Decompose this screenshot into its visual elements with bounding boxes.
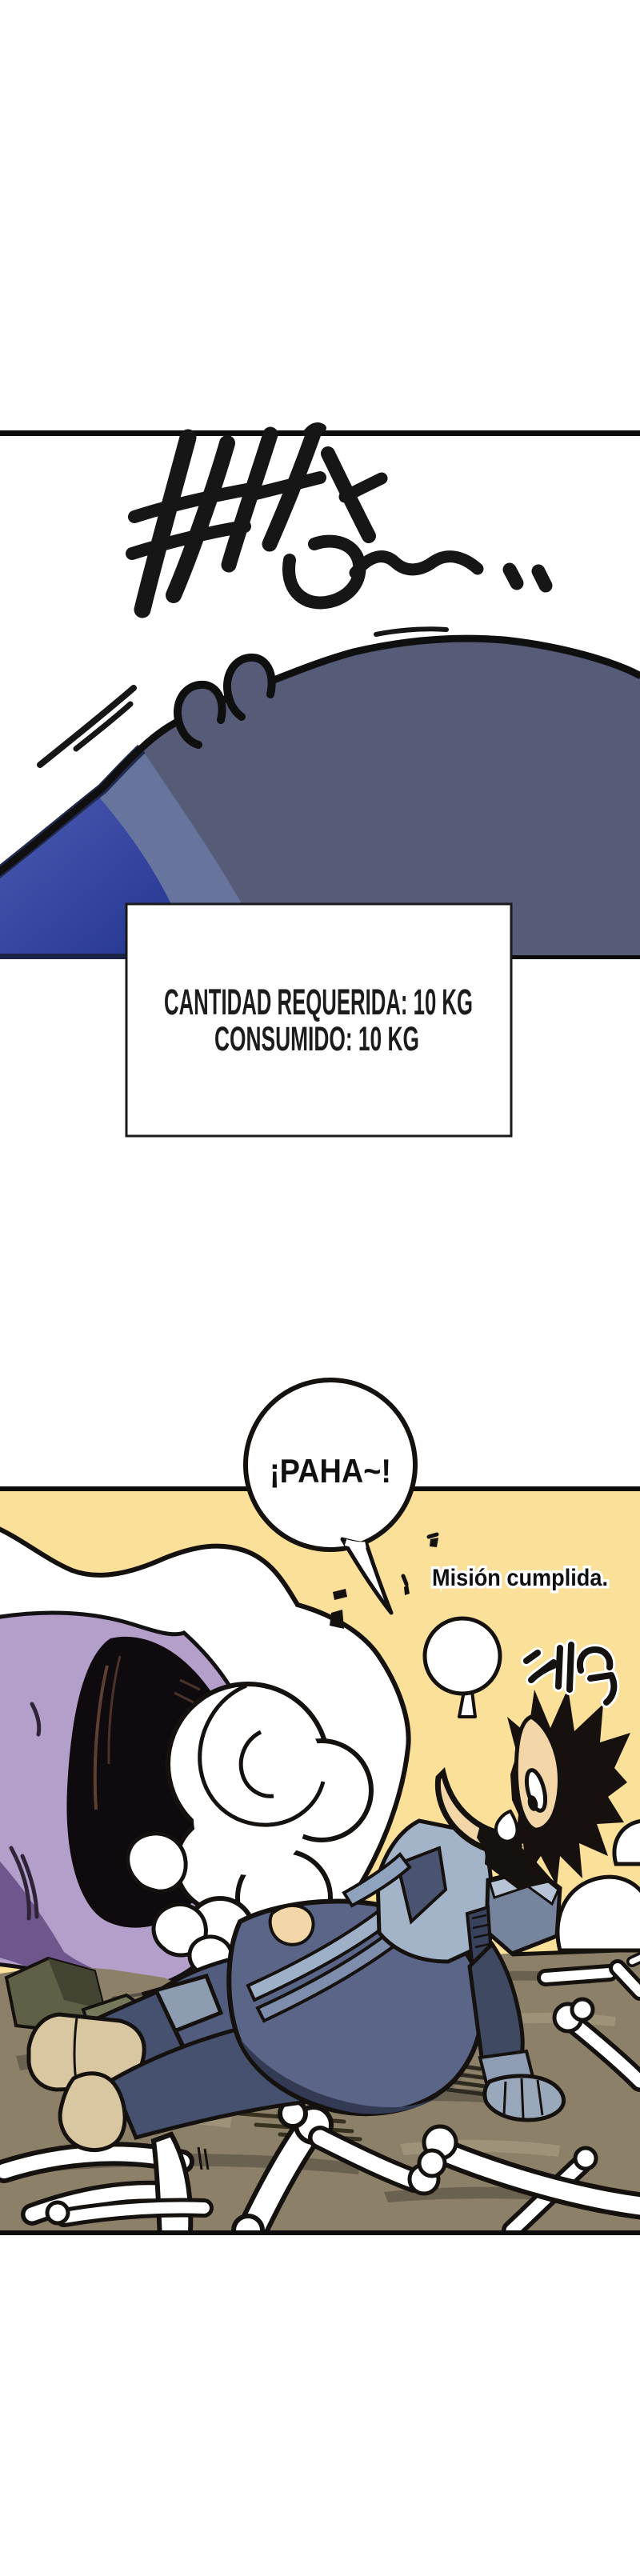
svg-text:¡PAHA~!: ¡PAHA~!: [270, 1452, 391, 1490]
svg-text:Misión cumplida.: Misión cumplida.: [432, 1565, 608, 1591]
svg-text:CANTIDAD REQUERIDA: 10 KG: CANTIDAD REQUERIDA: 10 KG: [164, 982, 473, 1022]
svg-text:CONSUMIDO: 10 KG: CONSUMIDO: 10 KG: [214, 1020, 419, 1058]
